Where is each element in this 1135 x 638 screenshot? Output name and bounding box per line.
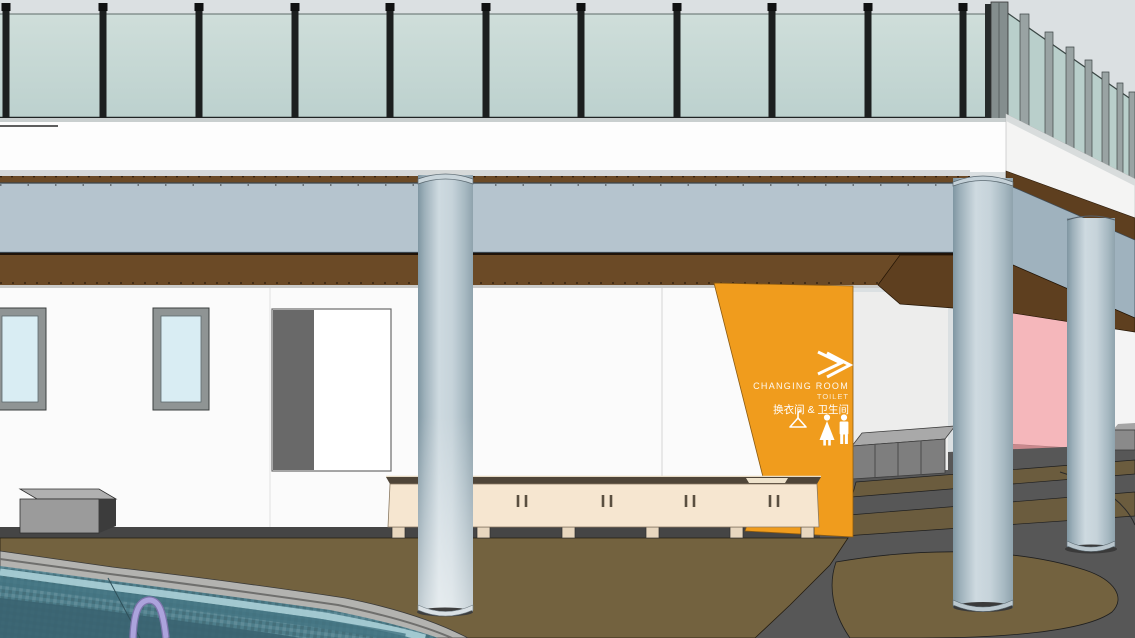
fascia-front xyxy=(0,118,1006,172)
bench-foot xyxy=(730,527,743,538)
box-front xyxy=(20,499,99,533)
railing-post xyxy=(1129,92,1135,186)
door-leaf-dark xyxy=(273,310,314,470)
box-top xyxy=(20,489,116,499)
railing-post xyxy=(387,5,394,118)
architectural-render-canvas: CHANGING ROOM TOILET 换衣间 & 卫生间 xyxy=(0,0,1135,638)
corner-post-dark xyxy=(985,4,991,118)
railing-post xyxy=(1020,14,1029,128)
railing-post xyxy=(578,5,585,118)
planter-box xyxy=(20,489,116,533)
railing-post-cap xyxy=(195,3,204,11)
railing-post-cap xyxy=(577,3,586,11)
railing-post-cap xyxy=(291,3,300,11)
column-right xyxy=(1065,216,1117,554)
beam-shadow-line xyxy=(0,253,970,255)
window-glass xyxy=(161,316,201,402)
window-middle xyxy=(153,308,209,410)
locker-row xyxy=(852,426,955,479)
railing-post xyxy=(769,5,776,118)
railing-post xyxy=(865,5,872,118)
railing-post-cap xyxy=(2,3,11,11)
railing-post xyxy=(674,5,681,118)
beam-trim-light xyxy=(0,170,970,176)
wall-shadow-strip xyxy=(0,527,820,538)
far-right-wall xyxy=(1115,324,1135,430)
railing-post xyxy=(960,5,967,118)
railing-post-cap xyxy=(959,3,968,11)
column-shaft-fade xyxy=(418,175,473,612)
sign-subtitle-en: TOILET xyxy=(817,392,849,401)
railing-post xyxy=(1045,32,1053,141)
railing-post xyxy=(1117,83,1123,179)
railing-post-cap xyxy=(99,3,108,11)
bench-top-notch xyxy=(746,478,788,483)
bench-foot xyxy=(562,527,575,538)
column-shaft xyxy=(1067,218,1115,548)
glass-panel-front xyxy=(0,14,1006,118)
bench-foot xyxy=(392,527,405,538)
window-left xyxy=(0,308,46,410)
railing-post xyxy=(100,5,107,118)
railing-post-cap xyxy=(864,3,873,11)
railing-post xyxy=(3,5,10,118)
column-shaft xyxy=(953,178,1013,608)
beam-front xyxy=(0,183,970,253)
railing-post xyxy=(1102,72,1109,171)
fascia-top-edge xyxy=(0,118,1006,122)
railing-post-cap xyxy=(386,3,395,11)
sign-title-zh: 换衣间 & 卫生间 xyxy=(773,403,849,416)
pink-panel xyxy=(1008,312,1070,448)
railing-post-cap xyxy=(482,3,491,11)
railing-post xyxy=(1066,47,1074,152)
bench-foot xyxy=(801,527,814,538)
locker-row-far-right xyxy=(1113,423,1135,450)
railing-post-cap xyxy=(768,3,777,11)
column-middle xyxy=(953,176,1013,612)
door-panel xyxy=(272,309,391,471)
sign-title-en: CHANGING ROOM xyxy=(753,381,849,391)
scene: CHANGING ROOM TOILET 换衣间 & 卫生间 xyxy=(0,0,1135,638)
bench-foot xyxy=(477,527,490,538)
column-front-left xyxy=(417,174,473,617)
bench-foot xyxy=(646,527,659,538)
roof-structure-front xyxy=(0,170,970,288)
railing-post xyxy=(483,5,490,118)
locker-front xyxy=(1113,430,1135,450)
window-glass xyxy=(2,316,38,402)
railing-post-cap xyxy=(673,3,682,11)
railing-post xyxy=(1085,60,1092,162)
railing-post xyxy=(196,5,203,118)
balustrade-front xyxy=(0,2,1008,120)
railing-post xyxy=(292,5,299,118)
